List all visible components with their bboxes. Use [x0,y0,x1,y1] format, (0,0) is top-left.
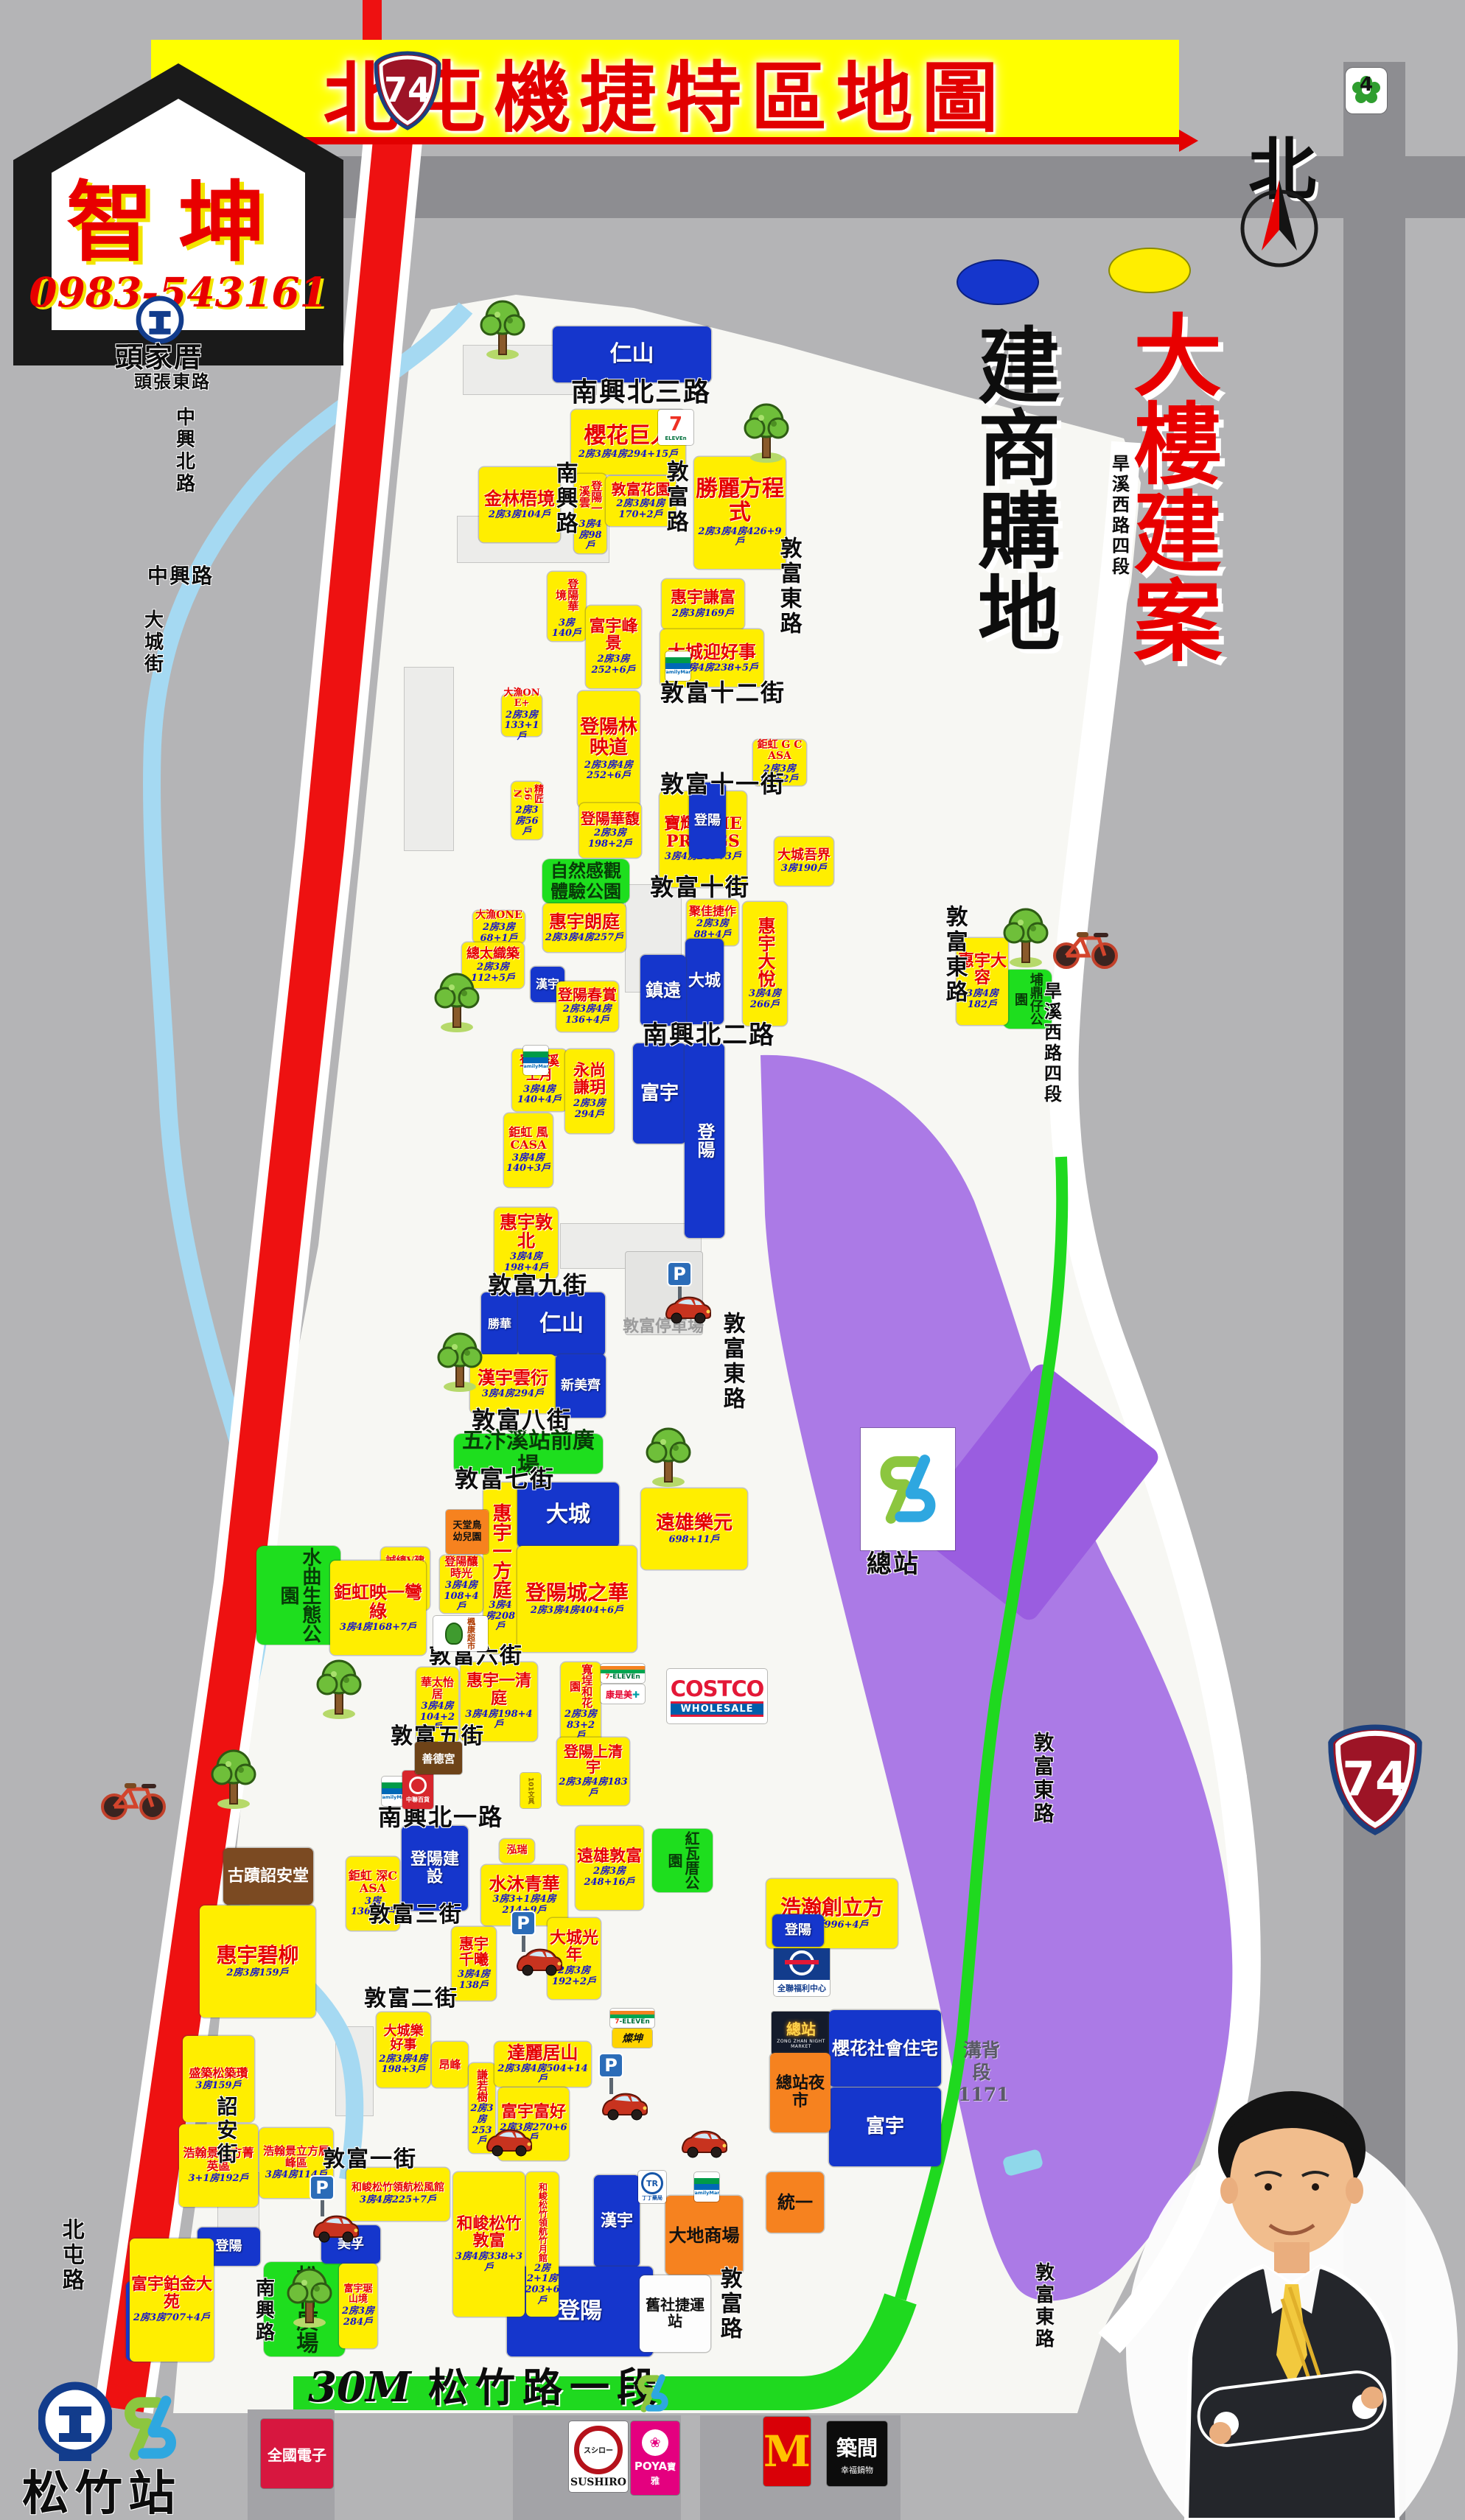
project-units: 2房3房294戶 [567,1099,612,1120]
tra-station-toujiacuo: 頭家厝 [115,343,203,372]
road-label: 南興北一路 [378,1805,503,1830]
project-name: 昂峰 [438,2059,461,2071]
night-market-sign: 總站 ZONG ZHAN NIGHT MARKET [772,2012,831,2054]
pxmart-emblem [774,1946,830,1980]
tree-icon [479,298,526,360]
familymart-sign: FamilyMart [523,1046,548,1075]
parking-p-box: P [598,2053,623,2078]
project-units: 2房2+1房203+6戶 [525,2264,559,2306]
road-label-touzhang: 頭張東路 [134,373,211,391]
project-units: 3房4房294戶 [482,1389,544,1400]
project-name: 富宇鉑金大苑 [131,2276,212,2311]
project-name: 登陽春賞 [558,987,617,1004]
map-poster: 北屯機捷特區地圖 智坤 0983-543161 74 74 4 建商購地 大樓建… [0,0,1465,2520]
bicycle-icon [1050,919,1121,970]
project-name: 登陽華境 [555,573,578,617]
project-block: 大城 [685,939,724,1024]
car-icon [598,2090,650,2121]
project-units: 3房4房225+7戶 [360,2195,436,2206]
project-name: 惠宇一方庭 [490,1503,511,1599]
highway-shield-74-right: 74 [1324,1721,1427,1837]
project-name: 浩翰景立方層峰區 [261,2145,332,2169]
project-name: 惠宇大悅 [755,917,775,987]
road-label: 南興路 [254,2278,273,2344]
tree-icon [743,402,790,463]
project-block: 登陽一溪雲3房4房98戶 [574,474,606,553]
project-name: 惠宇千曦 [453,1936,494,1968]
project-block: 鉅虹 風CASA3房4房140+3戶 [504,1113,553,1187]
songzhu-road-label: 30M 松竹路一段 [308,2355,664,2413]
project-units: 2房3房4房198+3戶 [378,2054,429,2076]
kindergarten-sign: 天堂鳥幼兒園 [446,1510,489,1554]
project-name: 富宇 [640,1083,679,1104]
project-block: 和峻松竹領航松風館3房4房225+7戶 [346,2168,450,2221]
tr-circle: TR [641,2172,663,2194]
parking-p-box: P [667,1261,692,1287]
songzhu-station-label: 松竹站 [22,2470,181,2518]
road-label: 敦富東路 [1032,1732,1053,1826]
project-block: 惠宇朗庭2房3房4房257戶 [543,903,626,952]
seven-eleven-sign: 7-ELEVEn [610,2009,654,2028]
park-block: 水曲生態公園 [256,1546,340,1645]
poya-logo: ❀ POYA寶雅 [631,2421,679,2495]
tr-name: 丁丁藥局 [642,2194,662,2202]
seven-eleven-text: 7-ELEVEn [615,2018,650,2026]
tsannkuen-text: 燦坤 [612,2029,652,2048]
zhonglian-sign: 中聯百貨 [402,1771,433,1809]
project-name: 登陽 [216,2239,242,2253]
project-name: 盛築松築瓚 [189,2067,248,2079]
project-name: 和峻松竹領航松風館 [352,2183,444,2194]
road-label: 敦富十街 [650,875,750,900]
project-block: 登陽上清宇2房3房4房183戶 [557,1737,629,1805]
project-block: 昂峰 [432,2042,468,2087]
project-block: 大地商場 [665,2196,743,2275]
project-units: 2房3房4房404+6戶 [531,1606,623,1617]
project-name: 新美齊 [561,1379,601,1393]
project-name: 大城吾界 [777,848,831,862]
zhonglian-text: 中聯百貨 [406,1796,430,1804]
elifemall-name: 全國電子 [268,2443,326,2465]
project-units: 2房3房4房183戶 [559,1777,628,1799]
project-name: 大地商場 [669,2226,740,2245]
project-name: 登陽一溪雲 [578,475,602,518]
zhujian-name: 築間 [836,2432,878,2462]
temple-text: 善德宮 [415,1742,462,1774]
project-name: 富宇琚山境 [340,2284,376,2305]
project-name: 敦富花園 [612,482,671,498]
project-name: 寬埕和花園 [569,1664,592,1708]
project-units: 3房4房338+3戶 [455,2252,523,2273]
project-block: 勝麗方程式2房3房4房426+9戶 [694,457,786,569]
legend-label-purchased: 建商購地 [952,323,1071,735]
costco-wordmark: COSTCO [671,1676,764,1701]
project-units: 3房140戶 [549,618,584,640]
project-name: 大漁ONE+ [503,688,540,709]
road-label: 旱溪西路四段 [1042,981,1060,1105]
bicycle-icon [98,1770,169,1821]
project-block: 富宇 [829,2087,941,2166]
temple-sign: 善德宮 [415,1742,462,1774]
project-block: 鎮遠 [640,955,686,1026]
project-units: 2房3房104戶 [489,510,550,521]
tree-icon [436,1331,483,1393]
highway-shield-74-top: 74 [371,49,444,131]
project-name: 金林梧境 [484,489,555,508]
road-label: 敦富九街 [488,1273,588,1298]
road-label: 北屯路 [59,2218,82,2293]
project-name: 大城 [546,1503,590,1527]
park-label: 水曲生態公園 [276,1546,321,1645]
project-block: 富宇 [633,1043,686,1144]
project-name: 富宇 [866,2116,904,2137]
seven-eleven-sign: 7-ELEVEn [601,1664,645,1683]
road-label: 南興北三路 [571,379,711,406]
familymart-text: FamilyMart [523,1063,548,1069]
project-block: 舊社捷運站 [640,2275,710,2352]
project-block: 總站夜市 [770,2053,831,2132]
project-units: 3房4房168+7戶 [340,1623,416,1634]
project-units: 3房4房108+4戶 [441,1581,481,1613]
project-block: 惠宇敦北3房4房198+4戶 [494,1208,558,1278]
legend-swatch-purchased [957,259,1039,305]
road-label: 敦富一街 [323,2149,417,2171]
project-name: 惠宇碧柳 [216,1945,298,1967]
project-block: 漢宇 [594,2175,640,2267]
tr-pharmacy-sign: TR丁丁藥局 [638,2171,666,2203]
car-icon [483,2126,534,2157]
city-route-badge: 4 [1346,68,1387,113]
project-name: 登陽華馥 [581,811,640,827]
sushiro-en: SUSHIRO [570,2477,626,2488]
poya-en: POYA [634,2460,667,2473]
project-name: 和峻松竹領航竹月館 [538,2183,548,2262]
pxmart-logo: 全聯福利中心 [774,1946,830,1996]
project-block: 惠宇千曦3房4房138戶 [452,1927,496,2001]
project-name: 達麗居山 [508,2043,578,2062]
project-units: 698+11戶 [668,1535,719,1546]
project-name: 鎮遠 [646,981,681,1000]
songzhu-road-name: 松竹路一段 [428,2364,664,2411]
project-name: 惠宇謙富 [671,589,735,607]
project-name: 漢宇雲衍 [478,1368,548,1387]
road-label: 南興北二路 [643,1023,775,1049]
project-block: 大漁ONE+2房3房133+1戶 [502,694,542,736]
zhujian-logo: 築間 幸福鍋物 [827,2421,887,2486]
agency-name: 智坤 [13,152,343,278]
costco-wholesale: WHOLESALE [671,1701,763,1717]
project-name: 富宇富好 [501,2104,566,2121]
project-name: 惠宇敦北 [496,1213,556,1251]
project-units: 3+1房192戶 [188,2174,248,2185]
project-units: 2房3房284戶 [340,2306,376,2328]
mcdonalds-logo: M [763,2417,811,2486]
familymart-sign: FamilyMart [694,2172,719,2202]
mrt-logo-icon [870,1438,946,1541]
project-block: 登陽 [772,1914,824,1947]
project-block: 和峻松竹敦富3房4房338+3戶 [453,2172,525,2317]
road-label: 中興路 [147,566,214,587]
project-units: 2房3房88+4戶 [688,919,737,940]
project-block: 惠宇謙富2房3房169戶 [662,579,744,629]
project-block: 登陽華馥2房3房198+2戶 [579,803,641,858]
tsannkuen-sign: 燦坤 [612,2029,652,2048]
project-block: 登陽華境3房140戶 [548,572,586,641]
sushiro-jp: スシロー [584,2444,613,2455]
project-block: 惠宇大悅3房4房266戶 [743,902,787,1026]
tree-icon [210,1748,257,1810]
depot-section-label: 溝背段1171 [958,2040,1005,2106]
project-units: 2房3房707+4戶 [133,2313,210,2324]
park-label: 自然感觀體驗公園 [542,861,629,901]
project-block: 金林梧境2房3房104戶 [479,467,560,542]
project-block: 櫻花社會住宅 [829,2010,941,2087]
project-block: 大漁ONE2房3房68+1戶 [473,911,525,943]
project-block: 登陽城之華2房3房4房404+6戶 [517,1546,637,1652]
project-block: 仁山 [553,326,711,382]
tree-icon [645,1426,692,1488]
project-units: 2房3房4房426+9戶 [696,527,784,548]
project-units: 2房3房4房504+14戶 [496,2064,590,2085]
project-name: 泓瑞 [507,1845,528,1856]
project-name: 富宇峰景 [587,618,640,654]
project-name: 鉅虹 深CASA [348,1869,398,1895]
project-units: 2房3房169戶 [672,609,734,620]
project-name: 總太織築 [466,947,520,961]
north-compass [1232,175,1326,273]
road-label: 敦富三街 [368,1904,463,1927]
road-label: 敦富東路 [1033,2262,1053,2351]
road-label: 敦富東路 [720,1312,743,1412]
pxmart-name: 全聯福利中心 [777,1982,826,1994]
mrt-terminal-label: 總站 [867,1552,920,1578]
project-units: 2房3房4房257戶 [545,933,623,944]
tree-icon [1002,906,1049,968]
project-units: 2房3房198+2戶 [581,828,640,850]
project-name: 遠雄樂元 [656,1513,732,1533]
tree-icon [433,971,480,1033]
project-name: 謙若樹 [476,2069,488,2102]
project-block: 達麗居山2房3房4房504+14戶 [494,2042,591,2087]
road-label: 敦富路 [663,460,686,535]
road-label: 詔安街 [215,2096,237,2166]
project-block: 鉅虹映一彎綠3房4房168+7戶 [330,1561,426,1655]
project-units: 2房3房159戶 [226,1968,288,1979]
project-name: 登陽 [694,813,721,827]
road-label: 敦富七街 [455,1467,555,1491]
project-name: 勝華 [488,1317,511,1330]
project-units: 2房3房4房294+15戶 [578,449,678,461]
project-units: 3房159戶 [195,2081,241,2092]
tree-icon [286,2267,333,2328]
road-label: 南興路 [553,461,576,536]
project-name: 登陽 [695,1123,714,1158]
project-name: 大漁ONE [475,910,522,921]
road-label: 敦富二街 [364,1988,458,2011]
elifemall-logo: 全國電子 [261,2419,333,2488]
night-market-sub: ZONG ZHAN NIGHT MARKET [772,2039,831,2049]
project-name: 華太怡居 [418,1676,457,1700]
park-label: 埔鼎仔公園 [1012,970,1042,1029]
project-name: 鉅虹映一彎綠 [332,1583,424,1621]
project-name: 永尚謙玥 [567,1063,612,1098]
project-units: 2房3房252+6戶 [587,654,640,676]
road-label: 大城街 [142,609,162,676]
project-name: 鉅虹 風CASA [506,1126,551,1152]
project-block: 仁山 [518,1292,605,1356]
project-name: 惠宇一清庭 [462,1673,536,1708]
project-block: 遠雄敦富2房3房248+16戶 [576,1826,643,1910]
project-name: 大城 [688,973,721,990]
project-name: 登陽城之華 [525,1582,629,1604]
project-units: 3房4房140+3戶 [506,1153,551,1175]
sushiro-logo: スシロー SUSHIRO [569,2421,628,2492]
car-icon [662,1293,713,1324]
road-label: 中興北路 [174,407,194,495]
seven-eleven-text: 7-ELEVEn [605,1673,640,1681]
realtor-photo [1119,2040,1465,2520]
project-units: 2房3房4房252+6戶 [579,760,638,782]
project-name: 和峻松竹敦富 [455,2216,523,2251]
parking-p-box: P [511,1911,536,1936]
road-label: 敦富十二街 [660,681,786,705]
project-block: 登陽林映道2房3房4房252+6戶 [578,691,640,808]
road-label: 敦富東路 [943,905,965,1005]
tra-logo-songzhu [38,2379,112,2474]
road-label: 敦富路 [717,2267,740,2342]
kindergarten-text: 天堂鳥幼兒園 [446,1510,489,1554]
road-label: 敦富八街 [472,1408,572,1432]
project-name: 登陽 [785,1923,811,1937]
project-units: 2房3房4房136+4戶 [558,1004,617,1026]
project-name: 惠宇朗庭 [549,912,620,931]
stationery-sign: 101文具 [520,1773,541,1808]
project-name: 櫻花社會住宅 [832,2039,938,2058]
mrt-terminal-logo [861,1428,955,1550]
project-units: 3房4房208戶 [485,1600,516,1633]
cosmed-text: 康是美✚ [606,1688,640,1701]
project-name: 總站夜市 [772,2075,829,2110]
cosmed-sign: 康是美✚ [601,1684,645,1704]
project-block: 和峻松竹領航竹月館2房2+1房203+6戶 [526,2172,559,2317]
project-block: 泓瑞 [500,1839,534,1863]
project-units: 2房3房248+16戶 [577,1866,642,1888]
parking-p-box: P [310,2175,335,2200]
title-arrow-right [1179,130,1209,152]
project-units: 3房4房98戶 [576,519,605,552]
project-name: 登陽 [558,2300,602,2323]
tra-logo-toujiacuo [136,295,184,344]
project-block: 惠宇碧柳2房3房159戶 [200,1905,315,2017]
project-name: 漢宇 [601,2213,633,2230]
seven-eleven-store: 7ELEVEn [658,410,693,445]
project-block: 遠雄樂元698+11戶 [641,1488,747,1569]
car-icon [310,2212,361,2243]
car-icon [513,1945,564,1976]
project-units: 3房190戶 [781,864,827,875]
tree-icon [315,1658,363,1720]
project-name: 登陽建設 [403,1851,466,1886]
project-units: 3房4房266戶 [744,989,786,1010]
project-name: 古蹟詔安堂 [228,1868,309,1886]
project-units: 2房3房56戶 [513,805,541,838]
project-name: 水沐青華 [489,1875,560,1894]
project-name: 精匠56N [511,783,542,804]
road-scale: 30M [308,2363,411,2412]
road-label: 旱溪西路四段 [1110,454,1127,578]
project-name: 仁山 [610,343,654,366]
project-block: 寬埕和花園2房3房83+2戶 [561,1662,601,1743]
project-block: 登陽建設 [402,1826,468,1911]
park-label: 紅瓦厝公園 [665,1829,699,1892]
svg-text:74: 74 [1342,1751,1408,1807]
project-name: 聚佳捷作 [689,905,736,917]
project-block: 富宇鉑金大苑2房3房707+4戶 [130,2239,214,2362]
project-name: 遠雄敦富 [577,1848,642,1866]
project-name: 統一 [777,2193,813,2212]
project-block: 登陽釀時光3房4房108+4戶 [440,1555,483,1613]
park-block: 紅瓦厝公園 [652,1829,713,1892]
project-name: 仁山 [539,1312,584,1336]
project-block: 富宇琚山境2房3房284戶 [339,2264,377,2348]
project-name: 勝麗方程式 [696,477,784,525]
project-name: 登陽上清宇 [559,1744,628,1776]
project-units: 3房4房138戶 [453,1970,494,1991]
mrt-logo-songzhu [115,2381,186,2474]
project-name: 登陽林映道 [579,717,638,758]
mcdonalds-m: M [763,2426,811,2477]
project-name: 鉅虹 G CASA [755,740,805,762]
project-block: 富宇峰景2房3房252+6戶 [586,606,641,688]
stationery-text: 101文具 [520,1773,541,1808]
road-label: 敦富十一街 [660,772,786,797]
project-block: 登陽 [685,1043,724,1238]
park-block: 自然感觀體驗公園 [542,859,629,903]
project-block: 古蹟詔安堂 [223,1848,313,1905]
legend-swatch-tower [1108,248,1191,293]
familymart-text: FamilyMart [665,669,690,675]
project-block: 惠宇一方庭3房4房208戶 [483,1483,517,1653]
project-block: 勝華 [481,1292,518,1356]
car-icon [678,2127,730,2158]
project-units: 3房4房140+4戶 [514,1085,565,1106]
project-units: 2房3房133+1戶 [503,710,540,743]
project-block: 精匠56N2房3房56戶 [511,782,542,839]
familymart-text: FamilyMart [694,2190,719,2196]
project-name: 舊社捷運站 [641,2297,709,2329]
zhujian-sub: 幸福鍋物 [841,2464,873,2476]
project-block: 統一 [766,2172,824,2233]
project-units: 2房3房68+1戶 [475,923,523,944]
road-label: 敦富東路 [777,536,800,637]
city-route-number: 4 [1346,74,1387,96]
project-name: 大城樂好事 [378,2024,429,2053]
fengkang-text: 楓康超市 [465,1617,477,1650]
project-block: 大城樂好事2房3房4房198+3戶 [377,2012,430,2087]
night-market-title: 總站 [786,2017,816,2039]
project-block: 登陽春賞2房3房4房136+4戶 [556,981,618,1032]
fengkang-sign: 楓康超市 [433,1616,488,1651]
project-block: 大城吾界3房190戶 [775,837,833,886]
familymart-sign: FamilyMart [665,651,690,681]
svg-text:74: 74 [384,70,431,110]
costco-logo: COSTCO WHOLESALE [667,1669,767,1723]
project-block: 永尚謙玥2房3房294戶 [565,1049,614,1133]
project-name: 登陽釀時光 [441,1555,481,1579]
